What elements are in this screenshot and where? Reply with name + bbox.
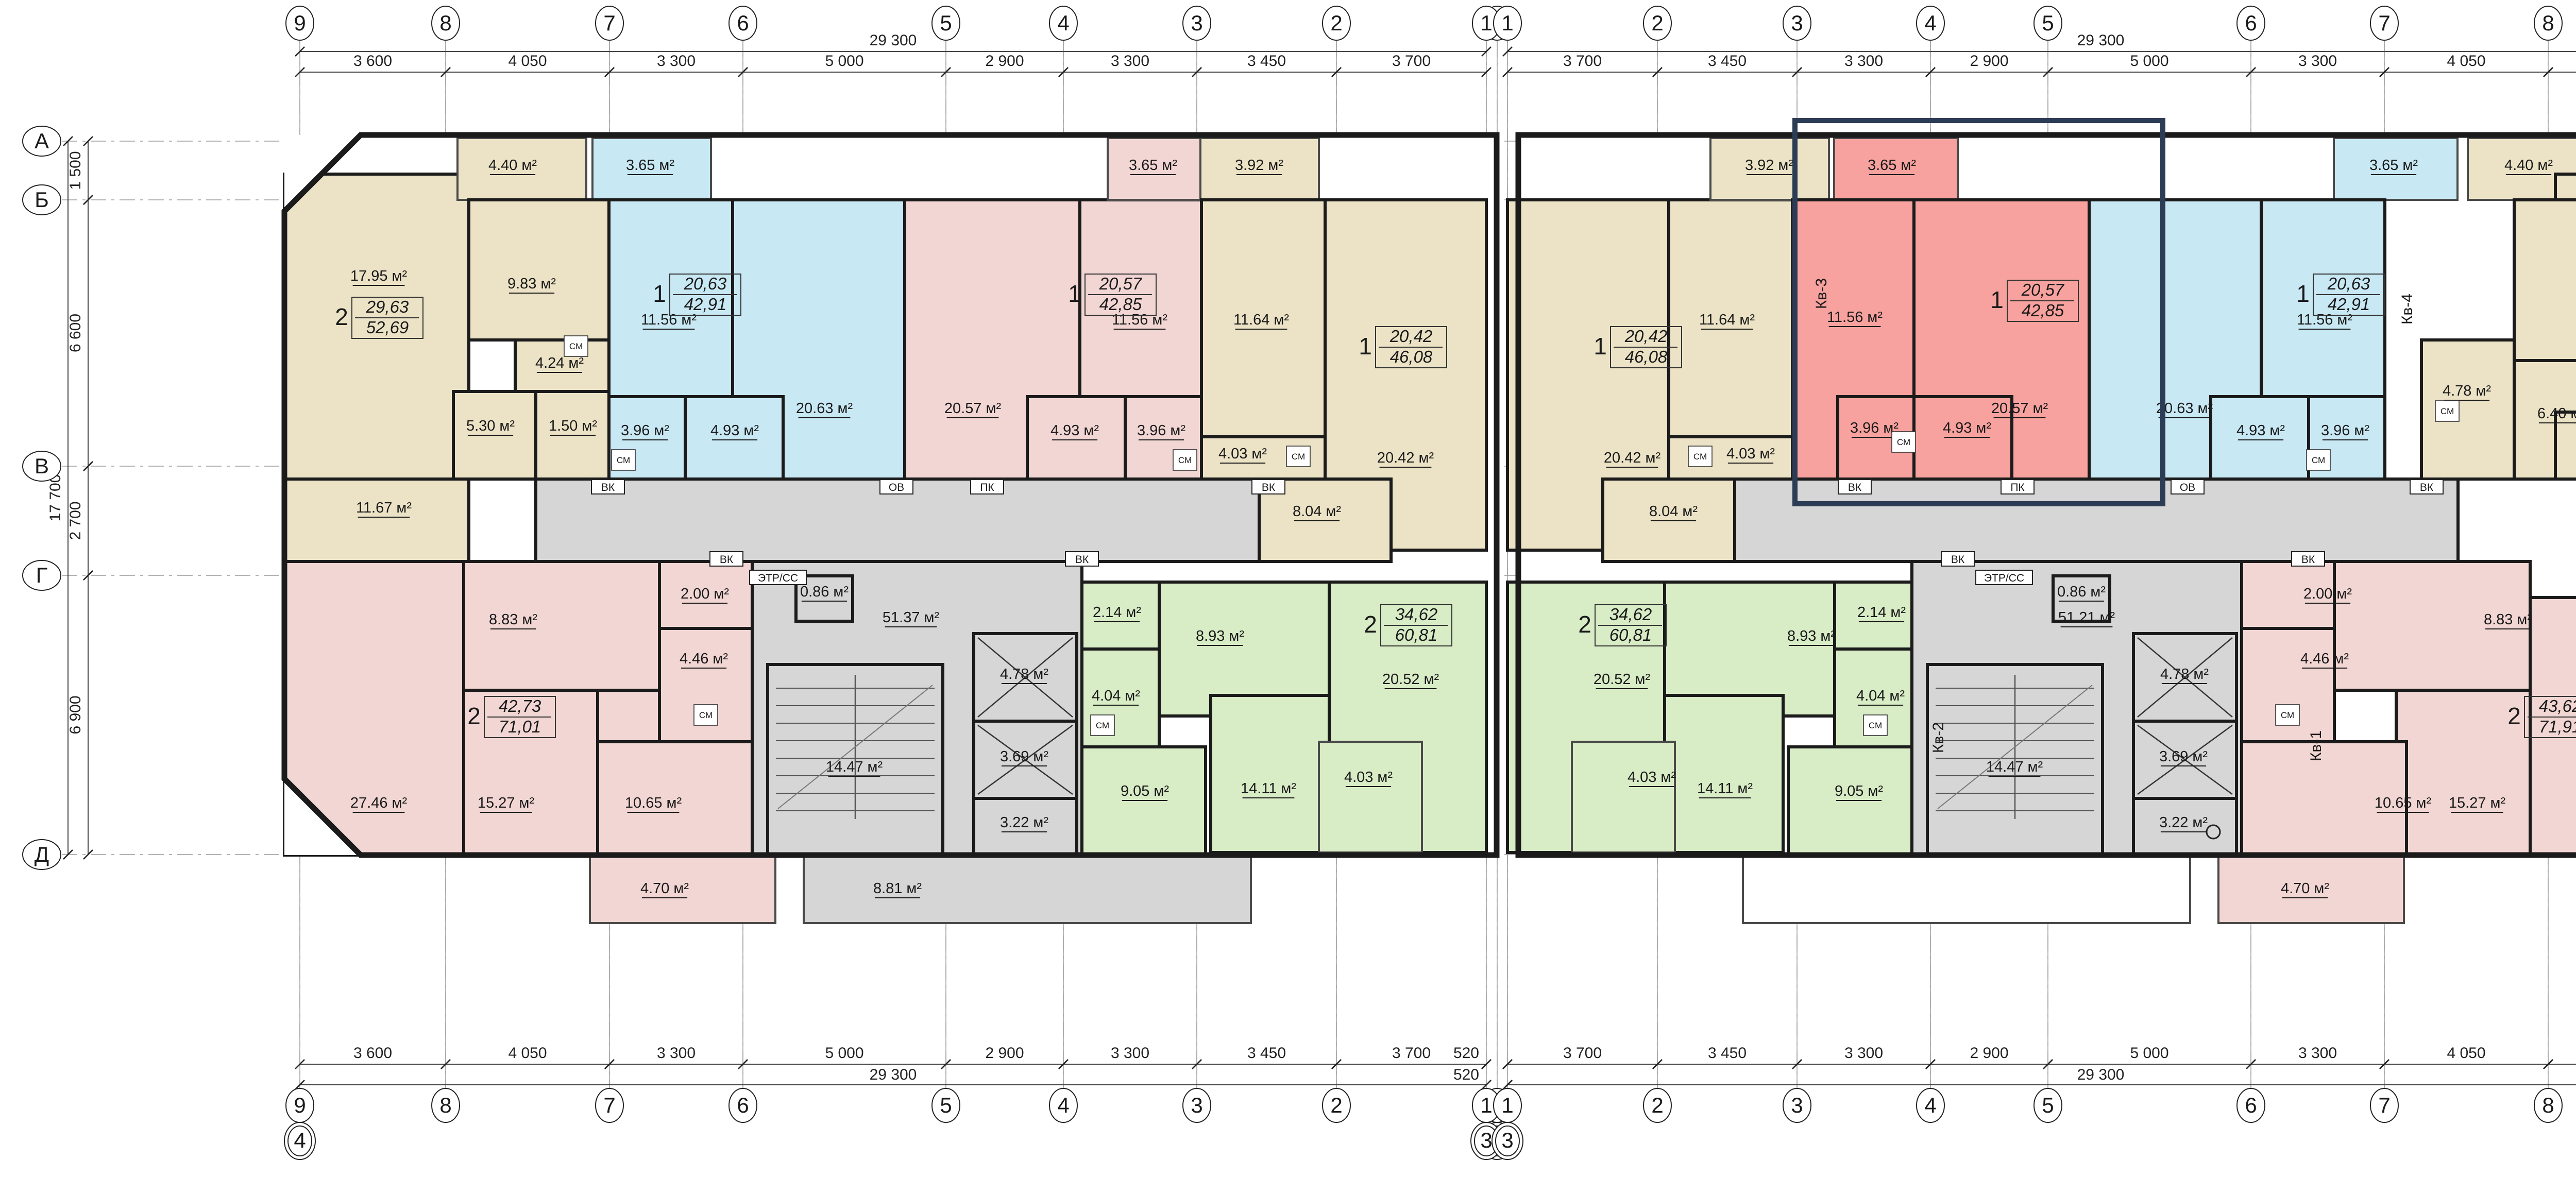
apartment-number-label: Кв-4 [2399,294,2416,325]
axis-circle-8: 8 [432,1088,460,1122]
apartment-rooms-count: 2 [1364,611,1377,638]
dim-segment: 3 700 [1563,1045,1602,1062]
axis-number: 3 [1791,11,1803,35]
room-area-label: 2.14 м² [1093,604,1141,621]
dim-segment: 3 600 [353,1045,392,1062]
axis-letter: Б [35,187,49,212]
section-circle-3: 3 [1492,1122,1523,1159]
axis-number: 1 [1480,1093,1492,1117]
room-area-label: 8.81 м² [873,880,922,897]
row-circle-Б: Б [23,185,61,215]
room-area-label: 4.93 м² [710,422,759,439]
apartment-rooms-count: 2 [335,303,348,330]
room-area-label: 4.93 м² [1050,422,1099,439]
washing-machine-label: СМ [1869,721,1882,730]
washing-machine-label: СМ [1096,721,1109,730]
axis-circle-9: 9 [286,6,314,40]
axis-circle-5: 5 [2034,1088,2062,1122]
room-8.81м² [804,855,1251,923]
dim-segment: 3 700 [1392,1045,1431,1062]
axis-circle-5: 5 [932,6,960,40]
room-area-label: 4.46 м² [680,651,728,667]
washing-machine-box: СМ [1091,715,1114,736]
axis-number: 9 [294,1093,306,1117]
axis-circle-9: 9 [286,1088,314,1122]
room-area-label: 27.46 м² [350,795,408,811]
living-area: 43,62 [2539,696,2576,715]
dim-segment: 3 300 [1844,1045,1883,1062]
dim-segment: 4 050 [2447,53,2485,70]
riser-label: ВК [1951,554,1965,566]
axis-letter: Д [35,842,49,866]
room-area-label: 2.14 м² [1857,604,1906,621]
living-area: 29,63 [366,297,409,316]
axis-circle-2: 2 [1643,1088,1671,1122]
washing-machine-label: СМ [2312,455,2325,465]
room-area-label: 20.57 м² [944,400,1002,417]
total-area: 42,91 [2328,295,2370,314]
washing-machine-label: СМ [617,455,630,465]
axis-number: 7 [2378,11,2390,35]
axis-circle-7: 7 [596,6,623,40]
washing-machine-box: СМ [1688,446,1712,467]
riser-label: ВК [2420,482,2434,493]
room-area [469,200,609,340]
room-14.11м²[interactable] [1665,695,1783,852]
axis-circle-7: 7 [596,1088,623,1122]
room-area-label: 4.70 м² [2281,880,2329,897]
total-area: 42,85 [2022,301,2064,320]
apartment-rooms-count: 1 [1594,333,1607,360]
dim-total: 29 300 [2077,32,2125,49]
room-area [804,855,1251,923]
dim-side-segment: 6 900 [67,695,84,734]
section-circle-4: 4 [284,1122,315,1159]
room-area-label: 0.86 м² [2057,584,2106,600]
apartment-rooms-count: 1 [1068,280,1081,307]
axis-letter: А [35,129,49,153]
room-9.83м²[interactable] [469,200,609,340]
room-area-label: 9.83 м² [507,276,556,292]
row-circle-Д: Д [23,840,61,869]
axis-circle-7: 7 [2370,1088,2398,1122]
dim-segment: 5 000 [2130,53,2168,70]
riser-ВК: ВК [1065,552,1098,566]
dim-segment: 3 300 [657,53,696,70]
axis-number: 6 [2245,1093,2257,1117]
dim-segment: 3 300 [657,1045,696,1062]
riser-ЭТР/СС: ЭТР/СС [750,570,806,585]
dim-segment: 3 450 [1247,1045,1286,1062]
dim-segment: 2 900 [1970,1045,2008,1062]
riser-label: ПК [2010,482,2025,493]
washing-machine-label: СМ [2281,710,2294,720]
axis-number: 4 [1057,1093,1069,1117]
riser-label: ПК [980,482,994,493]
row-circle-А: А [23,126,61,156]
riser-ОВ: ОВ [2171,480,2204,494]
axis-number: 3 [1191,11,1202,35]
room-area-label: 4.78 м² [2160,666,2209,683]
washing-machine-box: СМ [564,336,588,356]
room-area-label: 20.52 м² [1594,671,1651,688]
riser-ВК: ВК [1252,480,1285,494]
room-4.03м² [1572,742,1675,852]
room-area [1319,742,1422,852]
riser-label: ВК [601,482,615,493]
axis-circle-4: 4 [1049,1088,1077,1122]
axis-circle-2: 2 [1323,1088,1350,1122]
room-area-label: 4.40 м² [488,157,537,174]
dim-segment: 3 450 [1247,53,1286,70]
total-area: 71,91 [2539,717,2576,736]
axis-number: 3 [1791,1093,1803,1117]
axis-circle-2: 2 [1643,6,1671,40]
apartment-rooms-count: 2 [1578,611,1591,638]
riser-ЭТР/СС: ЭТР/СС [1976,570,2032,585]
apartment-number-label: Кв-2 [1930,722,1947,753]
axis-circle-6: 6 [729,1088,757,1122]
room-area-label: 10.65 м² [625,795,682,811]
axis-number: 1 [1501,11,1513,35]
total-area: 52,69 [366,318,409,337]
washing-machine-box: СМ [2307,450,2330,470]
axis-circle-3: 3 [1783,6,1811,40]
row-circle-В: В [23,451,61,481]
axis-circle-7: 7 [2370,6,2398,40]
apartment-rooms-count: 2 [467,703,481,729]
axis-circle-4: 4 [1049,6,1077,40]
axis-number: 2 [1651,11,1663,35]
axis-letter: Г [36,563,48,587]
room-unlabeled [2555,412,2576,479]
dim-total: 29 300 [2077,1066,2125,1083]
living-area: 42,73 [499,696,541,715]
room-area [1211,695,1329,852]
room-area-label: 3.92 м² [1745,157,1793,174]
riser-label: ВК [2301,554,2315,566]
room-area-label: 3.65 м² [2369,157,2418,174]
room-area-label: 14.11 м² [1697,780,1753,797]
room-area-label: 3.65 м² [626,157,674,174]
dim-side-segment: 6 600 [67,314,84,352]
room-area-label: 2.00 м² [681,586,729,602]
riser-ВК: ВК [1941,552,1974,566]
axis-circle-8: 8 [2534,6,2562,40]
room-area-label: 0.86 м² [800,584,849,600]
dim-segment: 3 300 [1111,53,1149,70]
room-area-label: 11.67 м² [356,500,412,516]
room-area-label: 3.69 м² [2159,748,2208,765]
riser-label: ЭТР/СС [758,572,798,584]
section-number: 3 [1480,1128,1492,1152]
dim-segment: 3 300 [2298,1045,2337,1062]
washing-machine-label: СМ [1897,437,1910,447]
washing-machine-box: СМ [1892,432,1916,452]
room-area-label: 4.04 м² [1092,688,1140,704]
riser-ВК: ВК [2292,552,2325,566]
dim-segment: 3 300 [1111,1045,1149,1062]
axis-number: 6 [737,1093,749,1117]
riser-label: ВК [1848,482,1862,493]
room-area-label: 4.03 м² [1344,769,1393,786]
axis-circle-6: 6 [2237,1088,2265,1122]
dim-total: 29 300 [870,1066,917,1083]
axis-number: 8 [439,1093,451,1117]
riser-ОВ: ОВ [880,480,913,494]
room-area-label: 51.37 м² [883,609,940,626]
total-area: 71,01 [499,717,541,736]
room-area-label: 4.03 м² [1628,769,1676,786]
room-area-label: 9.05 м² [1121,783,1169,799]
total-area: 60,81 [1395,625,1438,644]
dim-joint: 520 [1453,1066,1479,1083]
washing-machine-box: СМ [1286,446,1310,467]
room-area-label: 20.63 м² [796,400,853,417]
washing-machine-box: СМ [1863,715,1887,736]
axis-number: 2 [1651,1093,1663,1117]
dim-segment: 2 900 [985,1045,1024,1062]
dim-segment: 3 700 [1563,53,1602,70]
room-area-label: 2.00 м² [2303,586,2352,602]
dim-segment: 4 050 [2447,1045,2485,1062]
room-area-label: 20.52 м² [1382,671,1439,688]
room-area-label: 3.22 м² [2159,814,2208,831]
washing-machine-box: СМ [1173,450,1197,470]
living-area: 34,62 [1609,605,1652,624]
dim-segment: 4 050 [508,53,547,70]
living-area: 20,63 [684,274,727,293]
room-area-label: 11.56 м² [1827,309,1883,326]
apartment-rooms-count: 1 [1359,333,1372,360]
room-area-label: 20.42 м² [1377,450,1434,466]
room-area [284,479,469,561]
washing-machine-label: СМ [1292,452,1305,462]
room-area-label: 6.40 м² [2537,405,2576,422]
axis-number: 7 [2378,1093,2390,1117]
washing-machine-label: СМ [1178,455,1192,465]
washing-machine-label: СМ [2441,406,2454,416]
room-area-label: 11.56 м² [641,312,697,328]
room-area-label: 14.47 м² [1986,759,2043,775]
apartment-number-label: Кв-3 [1813,278,1830,309]
washing-machine-label: СМ [699,710,713,720]
room-area-label: 15.27 м² [2449,795,2506,811]
riser-label: ЭТР/СС [1984,572,2024,584]
axis-circle-3: 3 [1183,1088,1211,1122]
dim-segment: 3 300 [2298,53,2337,70]
dim-segment: 3 300 [1844,53,1883,70]
room-area-label: 3.65 м² [1868,157,1916,174]
room-unlabeled [1743,855,2190,923]
room-area-label: 14.47 м² [826,759,883,775]
floor-plan-svg: 17.95 м²11.67 м²4.40 м²3.65 м²9.83 м²4.2… [0,0,2576,1194]
section-number: 4 [294,1128,306,1152]
room-area-label: 4.78 м² [2443,383,2491,399]
axis-number: 6 [737,11,749,35]
room-area-label: 3.92 м² [1235,157,1283,174]
room-area-label: 4.40 м² [2504,157,2553,174]
room-area-label: 8.04 м² [1649,503,1698,520]
room-area-label: 15.27 м² [478,795,535,811]
axis-circle-2: 2 [1323,6,1350,40]
room-area-label: 4.46 м² [2300,651,2349,667]
riser-ВК: ВК [2410,480,2443,494]
room-area-label: 8.83 м² [2484,611,2532,628]
axis-number: 8 [2542,1093,2554,1117]
room-area-label: 20.42 м² [1604,450,1661,466]
room-11.67м²[interactable] [284,479,469,561]
room-area-label: 4.04 м² [1856,688,1905,704]
axis-circle-6: 6 [729,6,757,40]
room-area-label: 51.21 м² [2058,609,2115,626]
washing-machine-label: СМ [569,342,583,351]
total-area: 60,81 [1609,625,1652,644]
room-area-label: 3.65 м² [1129,157,1177,174]
apartment-rooms-count: 1 [1990,286,2004,313]
axis-number: 5 [940,11,952,35]
dim-joint: 520 [1453,1045,1479,1062]
living-area: 20,42 [1389,327,1433,346]
room-area-label: 3.96 м² [1137,422,1185,439]
room-area-label: 8.93 м² [1196,628,1244,644]
axis-circle-5: 5 [2034,6,2062,40]
washing-machine-box: СМ [612,450,635,470]
dim-segment: 2 900 [1970,53,2008,70]
dim-side-total: 17 700 [47,474,64,522]
axis-number: 1 [1480,11,1492,35]
apartment-rooms-count: 1 [653,280,666,307]
axis-letter: В [35,454,49,478]
dim-segment: 3 450 [1708,1045,1747,1062]
total-area: 42,91 [684,295,727,314]
axis-circle-3: 3 [1783,1088,1811,1122]
washing-machine-box: СМ [2276,705,2299,725]
axis-number: 9 [294,11,306,35]
riser-label: ОВ [889,482,904,493]
axis-number: 4 [1924,1093,1936,1117]
riser-ВК: ВК [1838,480,1871,494]
room-area-label: 4.93 м² [1943,420,1991,436]
axis-number: 7 [603,1093,615,1117]
riser-label: ОВ [2180,482,2195,493]
room-area-label: 4.03 м² [1218,446,1267,462]
room-area-label: 8.04 м² [1293,503,1341,520]
apartment-number-label: Кв-1 [2308,730,2325,761]
riser-label: ВК [1262,482,1276,493]
dim-segment: 3 600 [353,53,392,70]
dim-segment: 5 000 [825,53,863,70]
axis-circle-3: 3 [1183,6,1211,40]
room-area-label: 20.57 м² [1991,400,2048,417]
washing-machine-box: СМ [2435,401,2459,421]
room-area-label: 3.22 м² [1000,814,1048,831]
room-area-label: 4.78 м² [1000,666,1048,683]
dim-side-segment: 2 700 [67,501,84,540]
washing-machine-box: СМ [694,705,718,725]
dim-segment: 2 900 [985,53,1024,70]
washing-machine-label: СМ [1693,452,1707,462]
room-area-label: 3.96 м² [2321,422,2369,439]
room-area [1743,855,2190,923]
room-area [1665,695,1783,852]
riser-ПК: ПК [971,480,1004,494]
room-area-label: 11.64 м² [1233,312,1289,328]
dim-segment: 4 050 [508,1045,547,1062]
room-area-label: 11.64 м² [1699,312,1755,328]
axis-number: 7 [603,11,615,35]
room-area-label: 4.03 м² [1726,446,1775,462]
axis-number: 5 [2042,1093,2054,1117]
axis-circle-4: 4 [1917,1088,1944,1122]
axis-number: 2 [1330,1093,1342,1117]
room-area-label: 11.56 м² [1112,312,1167,328]
axis-circle-1: 1 [1494,6,1521,40]
axis-number: 6 [2245,11,2257,35]
axis-number: 8 [439,11,451,35]
room-area-label: 9.05 м² [1835,783,1883,799]
riser-label: ВК [720,554,734,566]
riser-ВК: ВК [591,480,624,494]
axis-circle-8: 8 [432,6,460,40]
room-14.11м²[interactable] [1211,695,1329,852]
dim-segment: 5 000 [2130,1045,2168,1062]
axis-number: 4 [1057,11,1069,35]
room-area [2514,200,2576,361]
apartment-rooms-count: 1 [2296,280,2310,307]
living-area: 20,63 [2327,274,2370,293]
dim-total: 29 300 [870,32,917,49]
dim-side-segment: 1 500 [67,151,84,190]
total-area: 46,08 [1625,347,1668,366]
room-area-label: 10.65 м² [2375,795,2432,811]
room-area-label: 4.70 м² [640,880,689,897]
axis-circle-6: 6 [2237,6,2265,40]
room-area [2555,412,2576,479]
axis-number: 4 [1924,11,1936,35]
room-area [1572,742,1675,852]
riser-ВК: ВК [710,552,743,566]
room-area-label: 3.69 м² [1000,748,1048,765]
floor-plan: 17.95 м²11.67 м²4.40 м²3.65 м²9.83 м²4.2… [0,0,2576,1194]
section-number: 3 [1501,1128,1513,1152]
axis-number: 5 [940,1093,952,1117]
room-4.03м² [1319,742,1422,852]
living-area: 20,57 [2021,280,2065,299]
room-unlabeled [2514,200,2576,361]
room-area-label: 4.24 м² [535,355,584,371]
living-area: 20,57 [1099,274,1143,293]
dim-segment: 5 000 [825,1045,863,1062]
riser-ПК: ПК [2001,480,2034,494]
room-area-label: 8.83 м² [489,611,537,628]
axis-number: 1 [1501,1093,1513,1117]
room-area-label: 14.11 м² [1241,780,1296,797]
axis-number: 3 [1191,1093,1202,1117]
axis-circle-5: 5 [932,1088,960,1122]
axis-circle-4: 4 [1917,6,1944,40]
room-area-label: 8.93 м² [1787,628,1836,644]
axis-number: 5 [2042,11,2054,35]
riser-label: ВК [1075,554,1089,566]
apartment-rooms-count: 2 [2507,703,2521,729]
living-area: 20,42 [1624,327,1668,346]
room-area-label: 5.30 м² [466,418,515,434]
room-area-label: 17.95 м² [350,268,408,284]
row-circle-Г: Г [23,560,61,590]
axis-number: 2 [1330,11,1342,35]
room-area-label: 4.93 м² [2236,422,2285,439]
